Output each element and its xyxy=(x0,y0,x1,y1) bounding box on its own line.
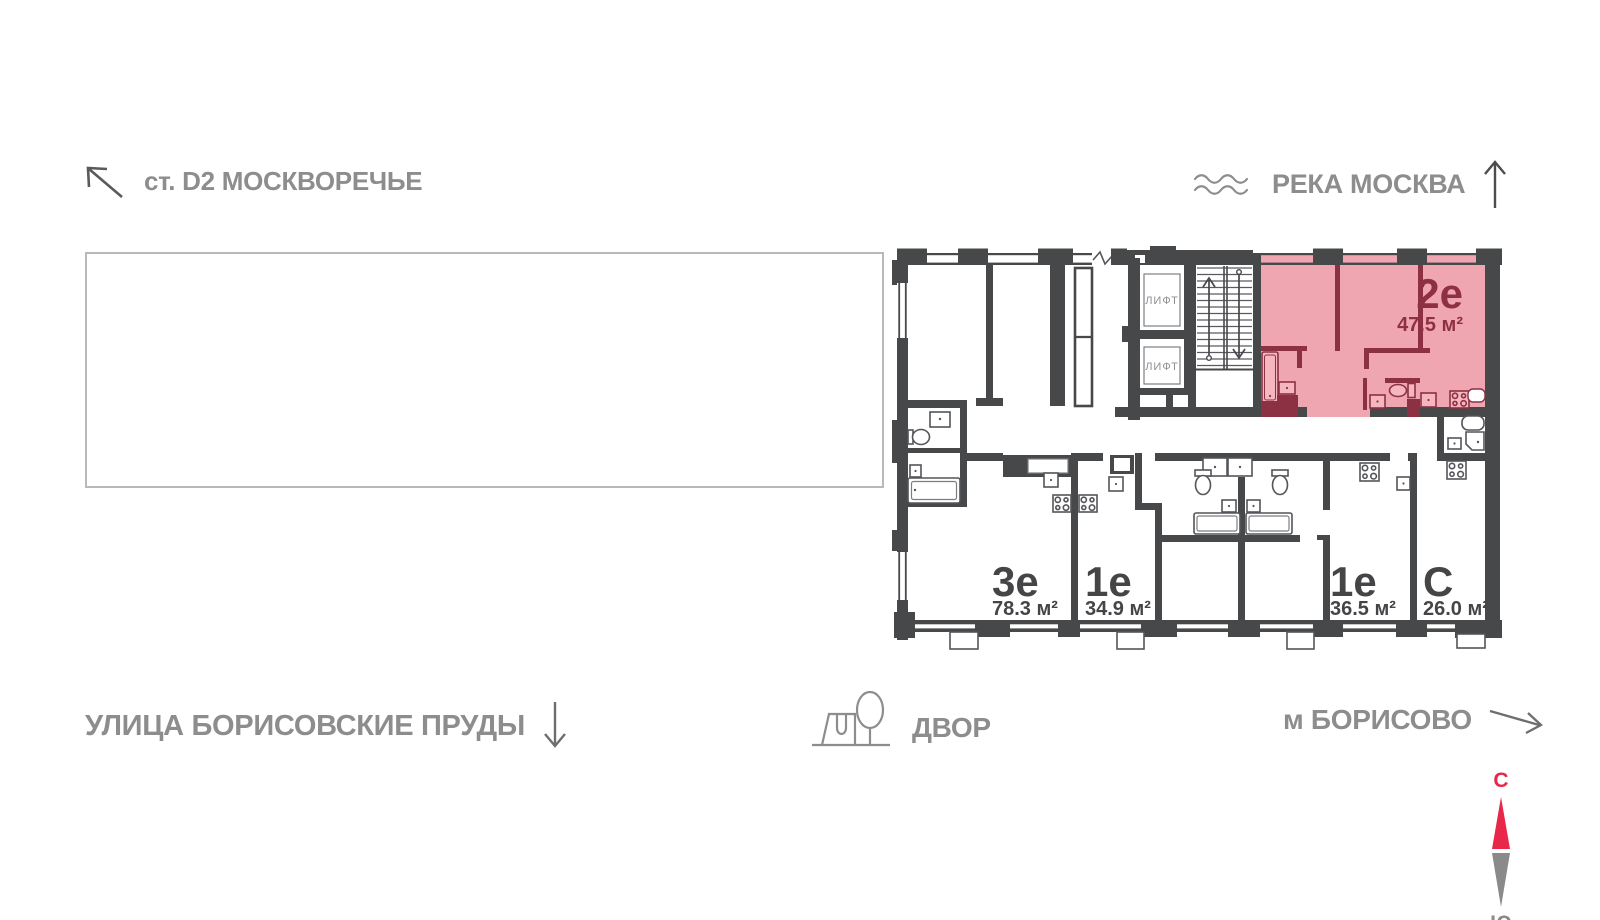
river-label: РЕКА МОСКВА xyxy=(1272,169,1465,200)
arrow-up-left-icon xyxy=(80,160,128,202)
legend-metro: м БОРИСОВО xyxy=(1283,702,1546,738)
apartment-studio-area: 26.0 м² xyxy=(1423,598,1489,620)
arrow-up-icon xyxy=(1481,158,1509,210)
stove-2e xyxy=(1450,391,1469,408)
elevator-1: ЛИФТ xyxy=(1140,270,1184,330)
compass-north-label: С xyxy=(1493,770,1508,791)
arrow-right-icon xyxy=(1488,702,1546,738)
station-label: ст. D2 МОСКВОРЕЧЬЕ xyxy=(144,166,422,197)
floor-plan: ЛИФТ ЛИФТ xyxy=(870,238,1510,650)
yard-label: ДВОР xyxy=(912,712,991,744)
legend-street: УЛИЦА БОРИСОВСКИЕ ПРУДЫ xyxy=(85,700,569,752)
elevator-1-label: ЛИФТ xyxy=(1145,295,1179,307)
adjacent-building-outline xyxy=(85,252,884,488)
apartment-3e-area: 78.3 м² xyxy=(992,598,1058,620)
apartment-2e-type: 2е xyxy=(1416,270,1463,317)
arrow-down-icon xyxy=(541,700,569,752)
apartment-2e-area: 47.5 м² xyxy=(1397,314,1463,336)
apartment-1e-left-area: 34.9 м² xyxy=(1085,598,1151,620)
elevator-2-label: ЛИФТ xyxy=(1145,361,1179,373)
stove-studio xyxy=(1447,461,1466,479)
floorplan-page: ст. D2 МОСКВОРЕЧЬЕ РЕКА МОСКВА xyxy=(0,0,1600,920)
legend-station: ст. D2 МОСКВОРЕЧЬЕ xyxy=(80,160,422,202)
yard-icon xyxy=(810,688,894,750)
waves-icon xyxy=(1192,168,1256,200)
compass: С Ю xyxy=(1484,770,1518,920)
legend-river: РЕКА МОСКВА xyxy=(1192,158,1509,210)
street-label: УЛИЦА БОРИСОВСКИЕ ПРУДЫ xyxy=(85,710,525,743)
apartment-1e-right-area: 36.5 м² xyxy=(1330,598,1396,620)
compass-needle-icon xyxy=(1490,795,1512,909)
stove-1e-left xyxy=(1079,495,1097,512)
legend-yard: ДВОР xyxy=(810,688,991,750)
elevator-2: ЛИФТ xyxy=(1140,343,1184,388)
compass-south-label: Ю xyxy=(1490,913,1512,920)
stove-1e-right xyxy=(1360,463,1379,481)
metro-label: м БОРИСОВО xyxy=(1283,704,1472,736)
stove-3e xyxy=(1053,495,1071,512)
